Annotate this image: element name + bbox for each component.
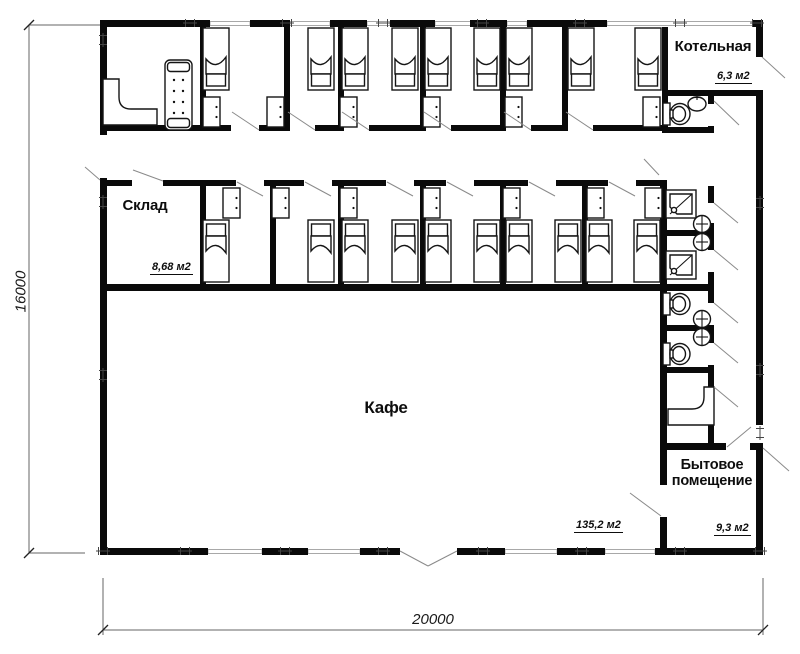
bed-icon	[308, 28, 334, 90]
furniture	[103, 28, 714, 425]
bed-icon	[392, 220, 418, 282]
area-label-bytovoe: 9,3 м2	[714, 522, 751, 536]
bed-icon	[203, 28, 229, 90]
cabinet-icon	[203, 97, 220, 127]
cabinet-icon	[223, 188, 240, 218]
bed-icon	[474, 220, 500, 282]
area-label-sklad: 8,68 м2	[150, 261, 193, 275]
cabinet-icon	[643, 97, 660, 127]
cabinet-icon	[340, 188, 357, 218]
room-label-sklad: Склад	[113, 197, 177, 214]
bed-icon	[586, 220, 612, 282]
bed-icon	[568, 28, 594, 90]
cabinet-icon	[503, 188, 520, 218]
cabinet-icon	[423, 97, 440, 127]
cabinet-icon	[587, 188, 604, 218]
floor-plan-drawing: Котельная 6,3 м2 Склад 8,68 м2 Кафе 135,…	[0, 0, 800, 654]
toilet-icon	[663, 103, 690, 125]
area-label-kotelnaya: 6,3 м2	[715, 70, 752, 84]
room-label-kotelnaya: Котельная	[663, 38, 763, 55]
bed-icon	[425, 220, 451, 282]
cabinet-icon	[272, 188, 289, 218]
sink-icon	[688, 95, 706, 111]
bed-icon	[634, 220, 660, 282]
toilet-icon	[663, 343, 690, 365]
room-label-kafe: Кафе	[346, 398, 426, 418]
bed-icon	[506, 28, 532, 90]
sofa-icon	[165, 60, 192, 130]
bed-icon	[506, 220, 532, 282]
bed-icon	[342, 220, 368, 282]
bed-icon	[392, 28, 418, 90]
bed-icon	[203, 220, 229, 282]
dimension-label-width: 20000	[393, 611, 473, 628]
reception-desk-icon	[103, 79, 157, 125]
bed-icon	[555, 220, 581, 282]
bed-icon	[425, 28, 451, 90]
bed-icon	[308, 220, 334, 282]
area-label-kafe: 135,2 м2	[574, 519, 623, 533]
cabinet-icon	[267, 97, 284, 127]
cabinet-icon	[423, 188, 440, 218]
bed-icon	[342, 28, 368, 90]
shower-icon	[666, 251, 696, 279]
bed-icon	[635, 28, 661, 90]
dimension-label-height: 16000	[13, 262, 30, 322]
shower-icon	[666, 190, 696, 218]
cabinet-icon	[645, 188, 662, 218]
room-label-bytovoe: Бытовое помещение	[664, 457, 760, 489]
floor-plan-canvas	[0, 0, 800, 654]
bed-icon	[474, 28, 500, 90]
toilet-icon	[663, 293, 690, 315]
counter-desk-icon	[668, 387, 714, 425]
